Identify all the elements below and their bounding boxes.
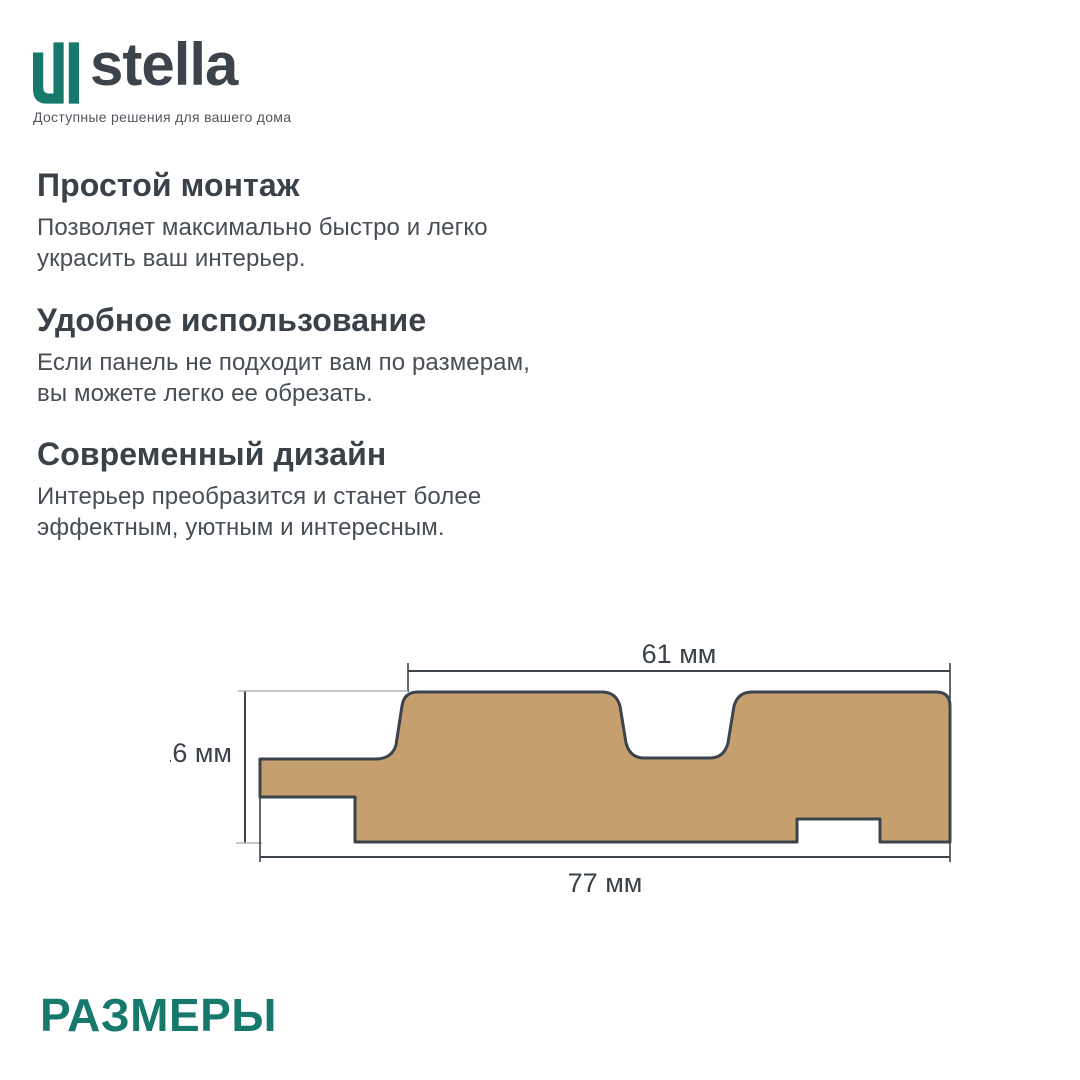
stella-logo-icon — [33, 42, 79, 104]
brand-tagline: Доступные решения для вашего дома — [33, 108, 453, 126]
panel-profile-shape — [260, 692, 950, 842]
feature-body: Если панель не подходит вам по размерам,… — [37, 347, 637, 409]
feature-body: Позволяет максимально быстро и легко укр… — [37, 212, 637, 274]
feature-body: Интерьер преобразится и станет более эфф… — [37, 481, 637, 543]
panel-cross-section-diagram: 61 мм 16 мм 77 мм — [170, 630, 970, 900]
feature-heading: Удобное использование — [37, 301, 637, 339]
feature-section-convenient-use: Удобное использование Если панель не под… — [37, 301, 637, 409]
feature-section-modern-design: Современный дизайн Интерьер преобразится… — [37, 435, 637, 543]
feature-heading: Современный дизайн — [37, 435, 637, 473]
page-title-sizes: РАЗМЕРЫ — [40, 988, 277, 1042]
dim-label-top: 61 мм — [642, 639, 717, 669]
feature-section-easy-mounting: Простой монтаж Позволяет максимально быс… — [37, 166, 637, 274]
brand-wordmark: stella — [90, 32, 237, 98]
dim-label-bottom: 77 мм — [568, 868, 643, 898]
feature-heading: Простой монтаж — [37, 166, 637, 204]
dim-label-left: 16 мм — [170, 738, 232, 768]
